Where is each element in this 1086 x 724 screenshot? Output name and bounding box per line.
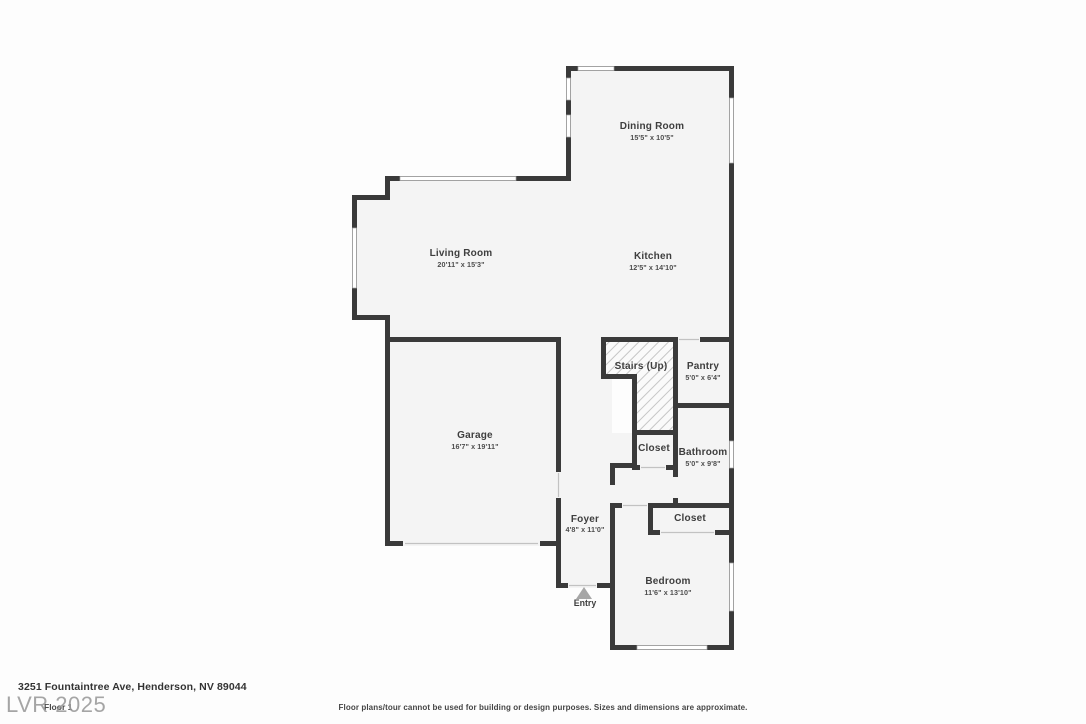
- wall-bedroom-closet-post-left: [648, 530, 660, 535]
- wall-stairs-step: [601, 374, 637, 379]
- window-bathroom-right: [730, 441, 734, 468]
- stairs-hatch: [603, 340, 676, 433]
- foyer-dims: 4'8" x 11'0": [565, 525, 604, 534]
- window-dining-top: [578, 67, 614, 71]
- wall-closet-post-left: [632, 465, 640, 470]
- bedroom-label: Bedroom: [645, 576, 690, 587]
- wall-stairs-bottom: [632, 430, 678, 435]
- wall-pantry-bottom: [673, 403, 734, 408]
- disclaimer-text: Floor plans/tour cannot be used for buil…: [0, 703, 1086, 712]
- foyer-label: Foyer: [571, 514, 599, 525]
- wall-stairs-top: [601, 337, 678, 342]
- wall-living-notch-h1: [352, 195, 390, 200]
- window-dining-left-1: [567, 78, 571, 100]
- bathroom-label: Bathroom: [679, 447, 728, 458]
- wall-closet-left: [632, 430, 637, 470]
- wall-bedroom-closet-post-right: [715, 530, 734, 535]
- wall-pantry-top: [700, 337, 734, 342]
- wall-bedroom-left: [610, 503, 615, 650]
- floor-plan-page: Dining Room 15'5" x 10'5" Living Room 20…: [0, 0, 1086, 724]
- window-dining-left-2: [567, 115, 571, 137]
- wall-foyer-left-lower: [556, 498, 561, 588]
- stairs-label: Stairs (Up): [615, 361, 668, 372]
- window-bedroom-right: [730, 563, 734, 611]
- bathroom-dims: 5'0" x 9'8": [685, 459, 720, 468]
- pantry-dims: 5'0" x 6'4": [685, 373, 720, 382]
- kitchen-dims: 12'5" x 14'10": [629, 263, 677, 272]
- wall-stairs-mid: [632, 374, 637, 435]
- wall-garage-top: [385, 337, 561, 342]
- wall-foyer-left-upper: [556, 337, 561, 472]
- garage-dims: 16'7" x 19'11": [451, 442, 498, 451]
- wall-bedroom-top-right: [648, 503, 734, 508]
- wall-garage-left: [385, 337, 390, 546]
- bedroom-dims: 11'6" x 13'10": [644, 588, 691, 597]
- window-bedroom-bottom: [637, 646, 707, 650]
- floor-dining-kitchen: [568, 68, 732, 342]
- window-living-top: [400, 177, 516, 181]
- wall-living-notch-h2: [352, 315, 390, 320]
- entry-label: Entry: [574, 598, 597, 608]
- bedroom-closet-label: Closet: [674, 513, 706, 524]
- kitchen-label: Kitchen: [634, 251, 672, 262]
- pantry-label: Pantry: [687, 361, 720, 372]
- garage-label: Garage: [457, 430, 493, 441]
- living-room-dims: 20'11" x 15'3": [437, 260, 484, 269]
- dining-room-label: Dining Room: [620, 121, 684, 132]
- living-room-label: Living Room: [430, 248, 493, 259]
- dining-room-dims: 15'5" x 10'5": [630, 133, 674, 142]
- wall-stairs-left: [601, 337, 606, 379]
- window-dining-right: [730, 98, 734, 163]
- window-living-left: [353, 228, 357, 288]
- wall-entry-post-left: [556, 583, 568, 588]
- hall-closet-label: Closet: [638, 443, 670, 454]
- floor-plan-drawing: Dining Room 15'5" x 10'5" Living Room 20…: [0, 0, 1086, 724]
